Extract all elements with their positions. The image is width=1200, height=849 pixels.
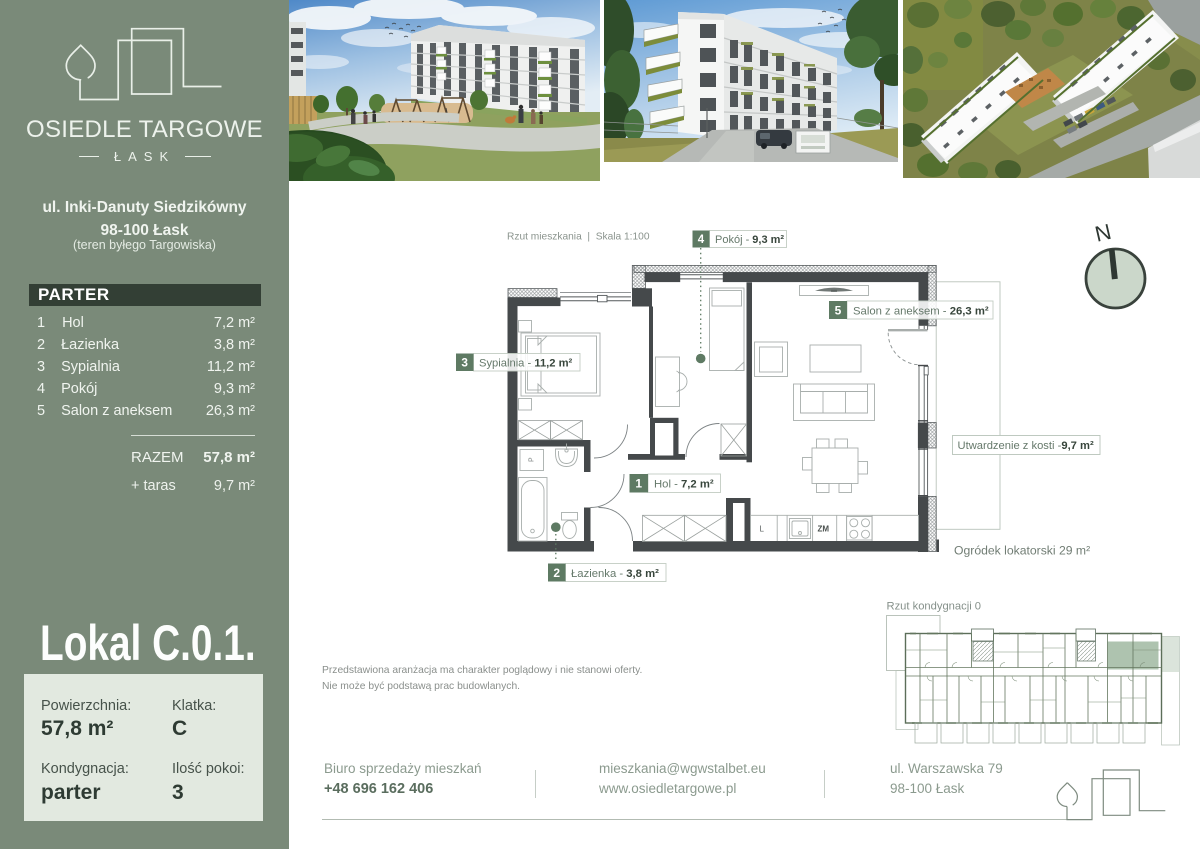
svg-text:4: 4 — [698, 234, 705, 246]
svg-text:1: 1 — [635, 477, 642, 491]
svg-text:2: 2 — [553, 566, 560, 580]
svg-text:Ogródek lokatorski 29 m²: Ogródek lokatorski 29 m² — [954, 544, 1090, 558]
svg-text:N: N — [1093, 219, 1114, 247]
svg-text:Salon z aneksem - 26,3 m²: Salon z aneksem - 26,3 m² — [853, 305, 989, 317]
svg-text:Pokój - 9,3 m²: Pokój - 9,3 m² — [715, 234, 784, 246]
svg-text:Utwardzenie z kosti -9,7 m²: Utwardzenie z kosti -9,7 m² — [958, 440, 1094, 452]
svg-text:Rzut kondygnacji 0: Rzut kondygnacji 0 — [887, 601, 982, 613]
svg-text:5: 5 — [835, 304, 842, 318]
svg-text:3: 3 — [461, 356, 468, 370]
svg-text:L: L — [760, 525, 765, 534]
svg-text:Łazienka - 3,8 m²: Łazienka - 3,8 m² — [571, 568, 659, 580]
svg-text:P: P — [529, 457, 536, 462]
svg-text:Hol - 7,2 m²: Hol - 7,2 m² — [654, 479, 714, 491]
svg-text:ZM: ZM — [818, 525, 830, 534]
svg-text:Rzut mieszkania | Skala 1:10: Rzut mieszkania | Skala 1:100 — [507, 232, 650, 243]
svg-text:Sypialnia - 11,2 m²: Sypialnia - 11,2 m² — [479, 357, 573, 369]
